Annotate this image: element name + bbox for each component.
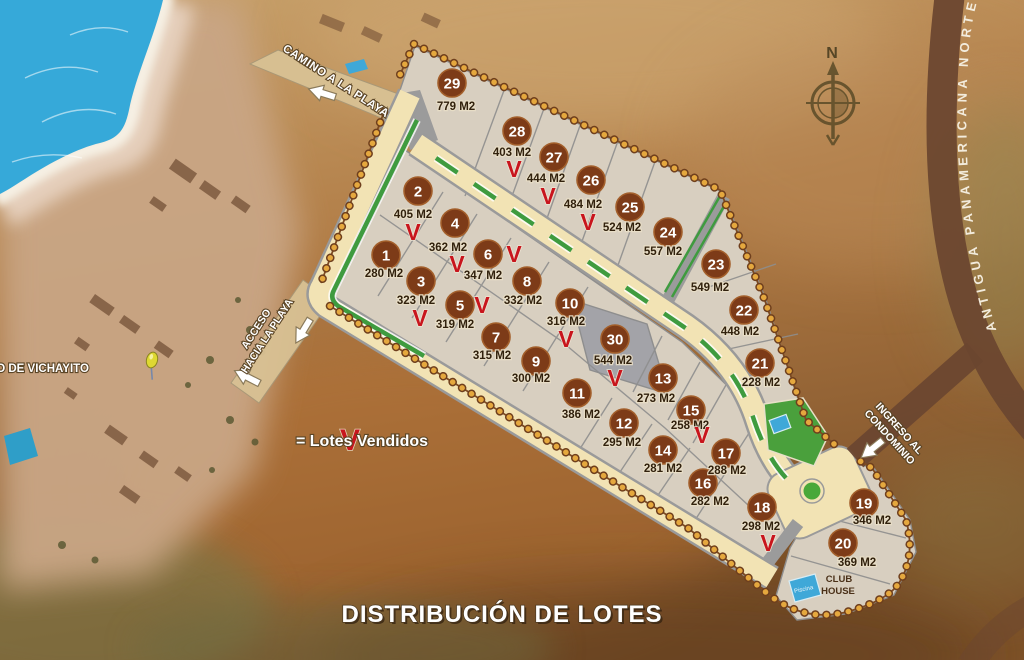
lot-number: 29	[444, 76, 461, 93]
sold-marker: V	[580, 209, 596, 235]
sold-marker: V	[558, 326, 574, 352]
lot-number: 19	[856, 496, 873, 513]
lot-area: 779 M2	[437, 101, 475, 113]
svg-text:DISTRIBUCIÓN DE LOTES: DISTRIBUCIÓN DE LOTES	[341, 600, 662, 628]
lot-number: 17	[718, 446, 735, 463]
lot-number: 9	[532, 354, 540, 371]
lot-number: 5	[456, 298, 464, 315]
sold-marker: V	[540, 183, 556, 209]
lot-area: 347 M2	[464, 270, 502, 282]
lot-area: 332 M2	[504, 295, 542, 307]
compass-n-label: N	[826, 45, 838, 62]
lot-area: 280 M2	[365, 268, 403, 280]
lot-area: 386 M2	[562, 409, 600, 421]
club-house-label: CLUB HOUSE	[821, 574, 855, 597]
lot-area: 448 M2	[721, 326, 759, 338]
sold-marker: V	[412, 305, 428, 331]
lot-number: 7	[492, 330, 500, 347]
svg-text:HOUSE: HOUSE	[821, 586, 855, 597]
lot-number: 12	[616, 416, 633, 433]
lot-area: 524 M2	[603, 222, 641, 234]
lot-area: 228 M2	[742, 377, 780, 389]
lot-area: 549 M2	[691, 282, 729, 294]
lot-area: 295 M2	[603, 437, 641, 449]
sold-marker: V	[474, 292, 490, 318]
lot-area: 346 M2	[853, 515, 891, 527]
lot-number: 28	[509, 124, 526, 141]
lot-number: 16	[695, 476, 712, 493]
sold-marker: V	[694, 422, 710, 448]
lot-number: 14	[655, 443, 672, 460]
lot-number: 24	[660, 225, 677, 242]
sold-marker: V	[607, 365, 623, 391]
lot-number: 20	[835, 536, 852, 553]
lot-number: 18	[754, 500, 771, 517]
lot-distribution-map: N CAMINO A LA PLAYA ACCESO HACIA LA PLAY…	[0, 0, 1024, 660]
lot-number: 30	[607, 332, 624, 349]
lot-number: 27	[546, 150, 563, 167]
lot-number: 4	[451, 216, 460, 233]
lot-area: 319 M2	[436, 319, 474, 331]
lot-number: 10	[562, 296, 579, 313]
lot-number: 11	[569, 386, 585, 403]
legend-sold-text: = Lotes Vendidos	[296, 433, 428, 450]
lot-number: 3	[417, 274, 425, 291]
lot-area: 557 M2	[644, 246, 682, 258]
refugio-label: EL REFUGIO DE VICHAYITO	[0, 363, 89, 375]
lot-number: 15	[683, 403, 700, 420]
lot-number: 1	[382, 248, 390, 265]
lot-number: 6	[484, 247, 492, 264]
lot-number: 2	[414, 184, 422, 201]
lot-area: 369 M2	[838, 557, 876, 569]
svg-text:CLUB: CLUB	[826, 574, 853, 585]
sold-marker: V	[405, 219, 421, 245]
lot-area: 300 M2	[512, 373, 550, 385]
sold-marker: V	[506, 241, 522, 267]
lot-area: 273 M2	[637, 393, 675, 405]
lot-number: 13	[655, 371, 672, 388]
lot-area: 288 M2	[708, 465, 746, 477]
map-title: DISTRIBUCIÓN DE LOTES DISTRIBUCIÓN DE LO…	[341, 600, 664, 630]
sold-marker: V	[506, 156, 522, 182]
lot-area: 315 M2	[473, 350, 511, 362]
lot-area: 281 M2	[644, 463, 682, 475]
lot-number: 26	[583, 173, 600, 190]
lot-number: 21	[752, 356, 769, 373]
lot-number: 22	[736, 303, 753, 320]
sold-marker: V	[760, 530, 776, 556]
lot-number: 8	[523, 274, 531, 291]
lot-number: 25	[622, 200, 639, 217]
lot-number: 23	[708, 257, 725, 274]
lot-area: 282 M2	[691, 496, 729, 508]
